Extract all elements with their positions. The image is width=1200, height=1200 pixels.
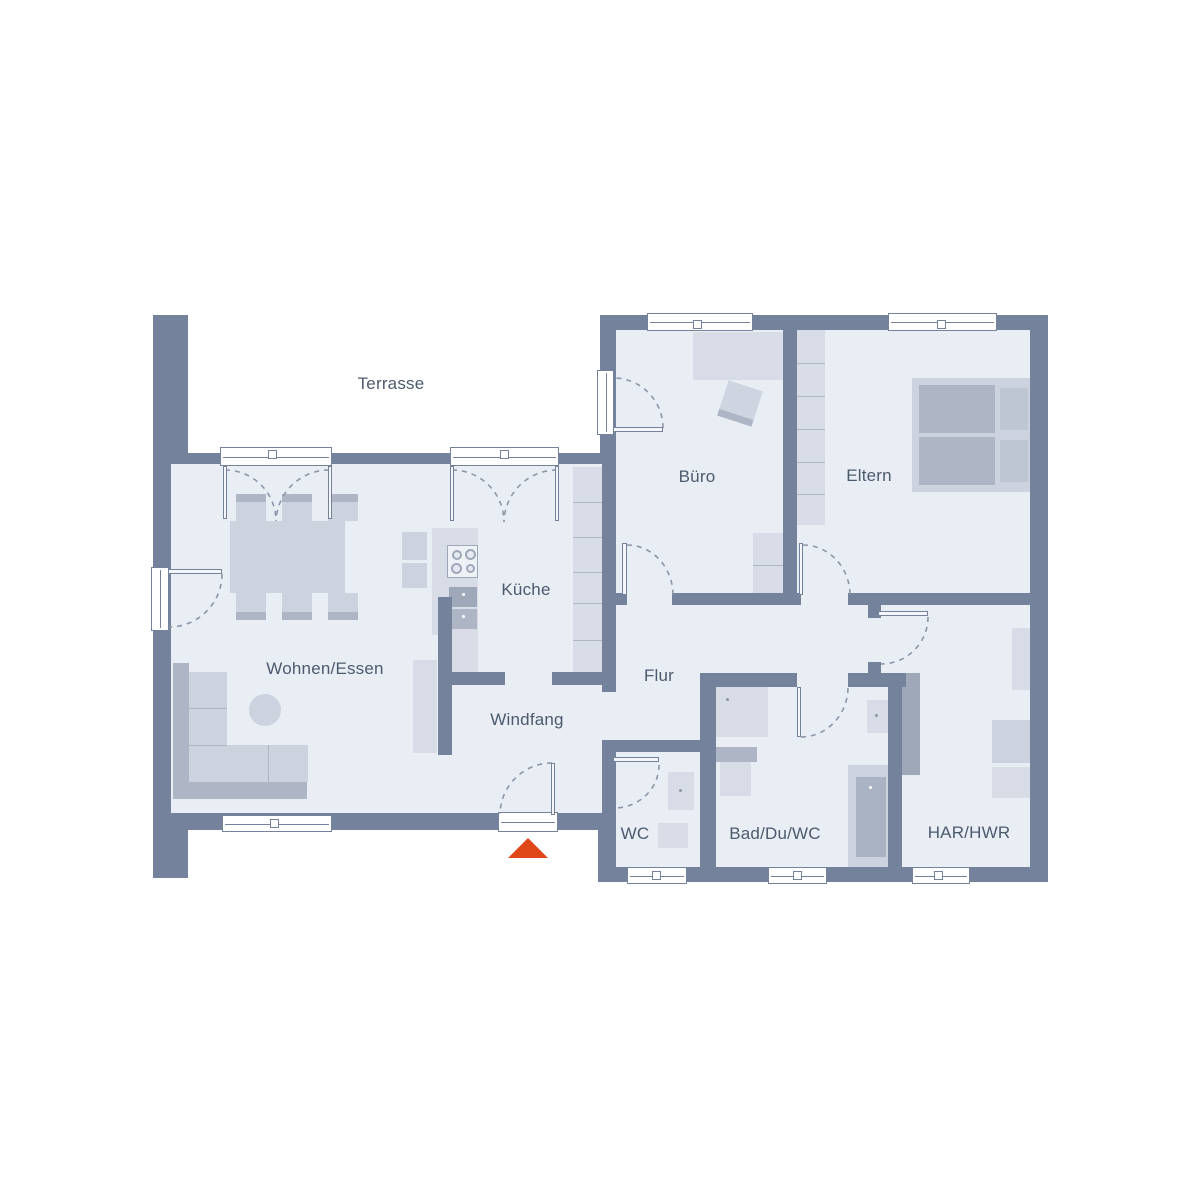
room-label-flur: Flur bbox=[644, 666, 674, 686]
door-arc bbox=[500, 763, 552, 814]
door-arc bbox=[276, 470, 329, 521]
door-arc bbox=[803, 545, 850, 595]
door-arc bbox=[504, 470, 557, 522]
door-arc bbox=[616, 765, 659, 808]
door-leaf bbox=[328, 466, 332, 519]
door-leaf bbox=[223, 466, 227, 519]
door-arc bbox=[801, 687, 848, 737]
entrance-marker bbox=[508, 838, 548, 858]
door-leaf bbox=[613, 427, 663, 432]
floorplan: Terrasse Wohnen/Essen Küche Windfang Flu… bbox=[0, 0, 1200, 1200]
door-arc bbox=[225, 470, 276, 521]
door-leaf bbox=[168, 569, 222, 574]
door-leaf bbox=[551, 763, 555, 815]
room-label-buero: Büro bbox=[679, 467, 716, 487]
room-label-wohnen-essen: Wohnen/Essen bbox=[266, 659, 383, 679]
door-leaf bbox=[799, 543, 803, 595]
door-leaf bbox=[878, 611, 928, 616]
door-arc bbox=[616, 378, 663, 428]
room-label-wc: WC bbox=[621, 824, 650, 844]
door-swing-arcs bbox=[0, 0, 1200, 1200]
room-label-eltern: Eltern bbox=[846, 466, 892, 486]
room-label-har-hwr: HAR/HWR bbox=[928, 823, 1011, 843]
room-label-kueche: Küche bbox=[501, 580, 550, 600]
door-leaf bbox=[797, 687, 801, 737]
room-label-windfang: Windfang bbox=[490, 710, 563, 730]
door-arc bbox=[627, 545, 673, 595]
door-arc bbox=[452, 470, 504, 522]
door-arc bbox=[169, 574, 222, 627]
room-label-terrasse: Terrasse bbox=[358, 374, 425, 394]
room-label-bad: Bad/Du/WC bbox=[729, 824, 821, 844]
door-leaf bbox=[613, 757, 659, 762]
door-leaf bbox=[622, 543, 627, 595]
door-leaf bbox=[555, 466, 559, 521]
door-arc bbox=[881, 617, 928, 664]
door-leaf bbox=[450, 466, 454, 521]
